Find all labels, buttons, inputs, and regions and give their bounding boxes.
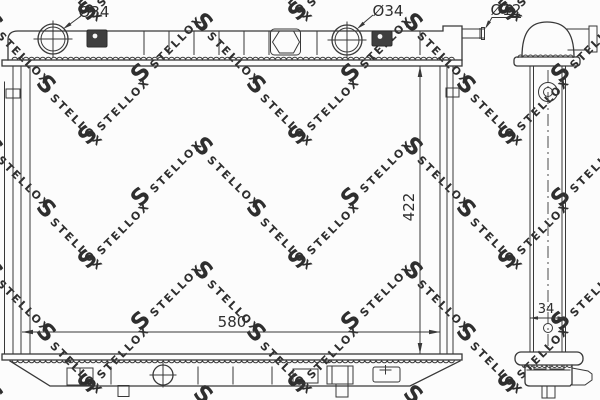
hex-plug-housing <box>271 29 301 55</box>
dim-height-value: 422 <box>400 193 418 222</box>
dim-arrow-right <box>429 330 440 335</box>
bottom-stub-left <box>118 386 129 397</box>
drain-plug <box>150 363 176 387</box>
cap-crosshair <box>328 22 366 58</box>
watermark-tile: SSTELLOX <box>126 6 208 88</box>
watermark-tile: SSTELLOX <box>0 380 60 400</box>
filler-cap-center <box>328 22 366 58</box>
leader-arrow <box>485 20 491 29</box>
watermark-tile: SSTELLOX <box>546 254 600 336</box>
watermark-tile: SSTELLOX <box>283 192 365 274</box>
watermark-tile: SSTELLOX <box>546 130 600 212</box>
mounting-clip-center <box>372 31 392 46</box>
watermark-tile: SSTELLOX <box>73 192 155 274</box>
pipe-right-label: Ø12 <box>491 1 522 19</box>
leader-arrow <box>63 22 72 29</box>
top-right-pipe <box>462 29 484 39</box>
port-center-label: Ø34 <box>373 2 404 20</box>
port-left-label: Ø34 <box>79 3 110 21</box>
bottom-bracket-3 <box>327 366 353 397</box>
hex-plug-nut <box>273 31 300 53</box>
clip-body <box>87 30 107 47</box>
clip-pin <box>93 34 98 39</box>
drain-plug-crosshair <box>150 363 176 387</box>
clip-pin <box>378 34 383 39</box>
bottom-tank <box>2 354 462 397</box>
dim-depth-value: 34 <box>538 302 555 317</box>
watermark-tile: SSTELLOX <box>73 68 155 150</box>
bracket-channels <box>332 366 348 384</box>
watermark-tile: SSTELLOX <box>398 380 480 400</box>
side-outlet-snout <box>572 368 592 385</box>
dim-arrow-left <box>22 330 33 335</box>
dimension-width: 580 <box>22 313 440 334</box>
watermark-tile: SSTELLOX <box>126 130 208 212</box>
dim-arrow-top <box>418 66 423 77</box>
side-dome-cap <box>522 22 574 57</box>
bottom-bracket-4 <box>373 366 400 383</box>
watermark-tile: SSTELLOX <box>126 254 208 336</box>
dim-arrow-bottom <box>418 343 423 354</box>
callout-port-left: Ø34 <box>63 3 109 29</box>
mounting-clip-left <box>87 30 107 47</box>
clip-body <box>372 31 392 46</box>
bracket-body <box>373 367 400 382</box>
watermark-tile: SSTELLOX <box>336 254 418 336</box>
bottom-tank-ribs <box>111 367 272 384</box>
dimension-height: 422 <box>400 66 422 354</box>
watermark-tile: SSTELLOX <box>188 380 270 400</box>
bracket-body <box>327 366 353 384</box>
watermark-tile: SSTELLOX <box>283 0 365 26</box>
radiator-technical-drawing: SSTELLOXSSTELLOXSSTELLOXSSTELLOXSSTELLOX… <box>0 0 600 400</box>
dim-width-value: 580 <box>218 313 247 331</box>
hex-plug <box>271 29 301 55</box>
watermark-tile: SSTELLOX <box>283 68 365 150</box>
side-bottom-stub <box>542 386 555 398</box>
